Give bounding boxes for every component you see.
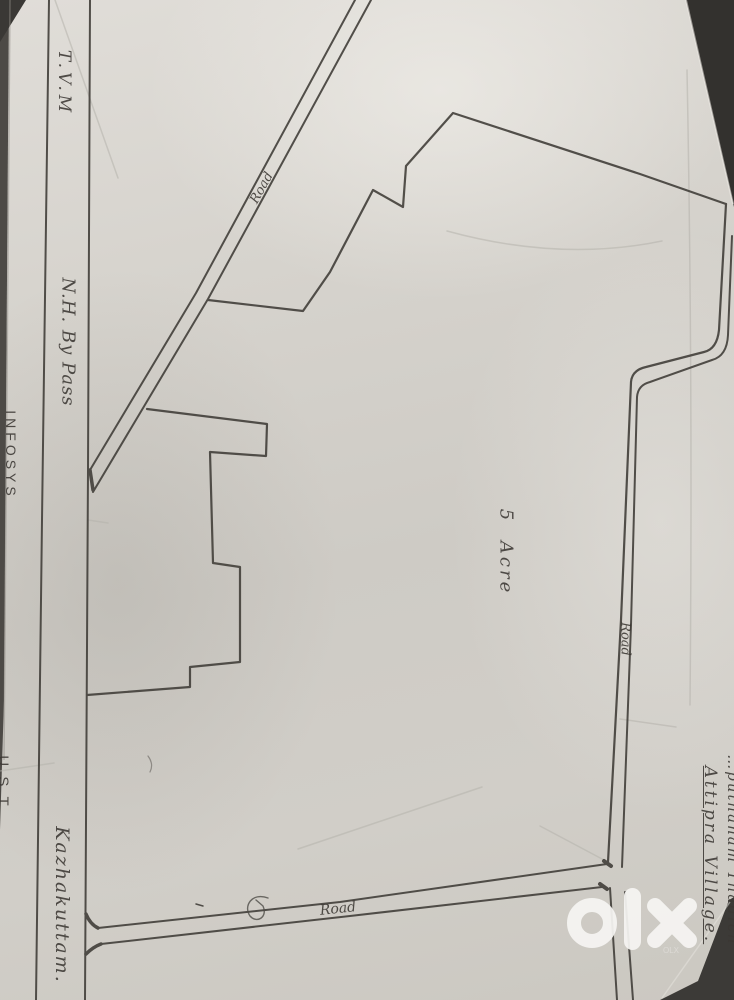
paper-creases [0, 0, 691, 860]
photo-background-edges [0, 0, 734, 1000]
plot-west-boundary [87, 409, 267, 695]
label-nh-bypass: N.H. By Pass [58, 277, 79, 406]
olx-o-glyph [574, 905, 610, 941]
label-infosys: INFOSYS [3, 410, 19, 499]
plot-north-boundary [208, 113, 726, 311]
label-village-note: …puthanam Thadich [724, 754, 734, 946]
sketch-drawing: OLX [0, 0, 734, 1000]
stray-pen-marks [148, 756, 268, 919]
sketch-photo: OLX T.V.M N.H. By Pass INFOSYS U.S.T Kaz… [0, 0, 734, 1000]
label-kazhakuttam: Kazhakuttam. [51, 826, 73, 984]
olx-watermark: OLX [574, 888, 700, 955]
diagonal-access-road [90, 0, 371, 492]
label-road-east: Road [618, 622, 633, 656]
olx-x-glyph [644, 895, 701, 952]
label-attipra-village: Attipra Village. [700, 766, 720, 944]
olx-subtext: OLX [663, 946, 680, 955]
label-plot-area: 5 Acre [496, 509, 517, 596]
label-tvm: T.V.M [54, 50, 74, 116]
label-ust: U.S.T [0, 755, 12, 808]
olx-l-glyph [624, 888, 641, 950]
